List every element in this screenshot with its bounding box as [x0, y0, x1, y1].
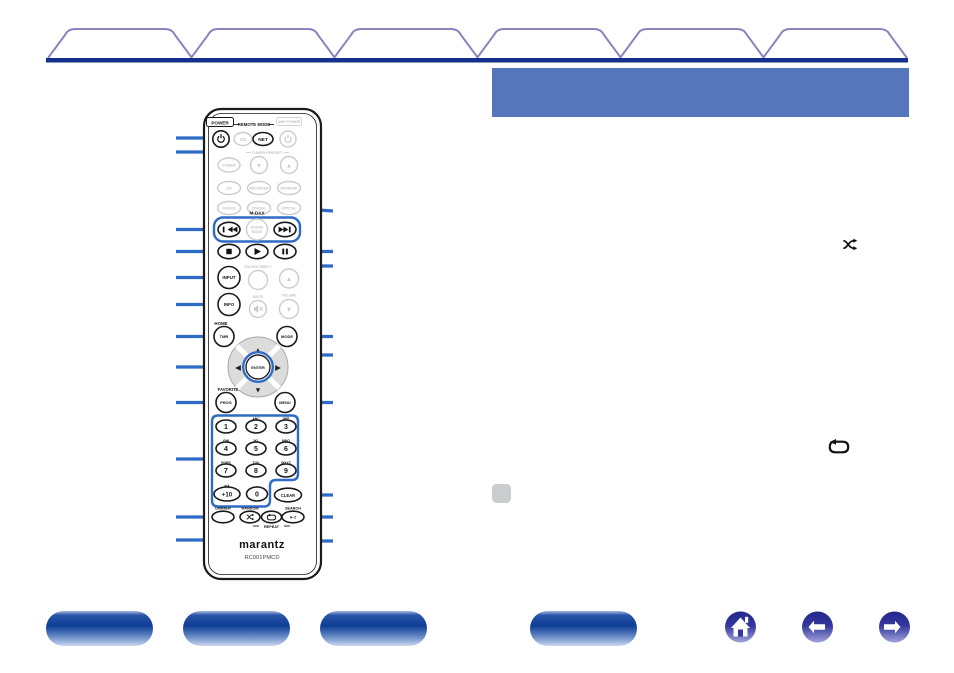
dpad-right-icon: ▶: [275, 363, 281, 372]
brand-logo: marantz: [239, 539, 285, 551]
input-label: INPUT: [222, 275, 235, 280]
net-mode-label: NET: [258, 137, 268, 143]
repeat-button: [262, 511, 282, 523]
preset-down-icon: ▼: [256, 164, 262, 170]
dimmer-button: [212, 511, 234, 523]
home-label: HOME: [214, 321, 227, 326]
volume-up-icon: ▲: [286, 276, 292, 283]
stop-icon: [226, 249, 231, 254]
footer-button-2[interactable]: [183, 611, 290, 646]
source-direct-button: [249, 271, 268, 290]
plus10-label: +10: [222, 492, 233, 498]
power-label: POWER: [211, 121, 229, 126]
zero-label: 0: [255, 492, 259, 499]
manual-page: POWER REMOTE MODE AMP POWER CD NET TUNER…: [0, 0, 954, 673]
key9-digit: 9: [284, 468, 288, 475]
volume-label: VOLUME: [281, 294, 297, 298]
mdax-label: M-DAX: [249, 211, 265, 216]
cd-mode-label: CD: [240, 137, 247, 142]
favorite-label: FAVORITE: [218, 387, 239, 392]
phono-label: PHONO: [223, 207, 236, 211]
key4-digit: 4: [224, 446, 228, 453]
remote-diagram: POWER REMOTE MODE AMP POWER CD NET TUNER…: [204, 109, 321, 579]
pause-button: [274, 244, 296, 258]
tab-6[interactable]: [763, 29, 907, 58]
clear-label: CLEAR: [281, 493, 295, 498]
footer-button-3[interactable]: [320, 611, 427, 646]
amp-power-button: [280, 131, 296, 147]
random-label: RANDOM: [241, 507, 258, 511]
home-button[interactable]: [725, 612, 756, 643]
tab-5[interactable]: [620, 29, 764, 58]
key7-digit: 7: [224, 468, 228, 475]
mute-label: MUTE: [253, 295, 264, 299]
preset-up-icon: ▲: [286, 164, 292, 170]
dpad-down-icon: ▼: [254, 386, 261, 395]
key3-digit: 3: [284, 424, 288, 431]
forward-button[interactable]: [879, 612, 910, 643]
volume-down-icon: ▼: [286, 307, 292, 314]
tuner-label: TUNER: [222, 164, 235, 168]
random-button: [240, 511, 260, 523]
tab-2[interactable]: [191, 29, 335, 58]
repeat-label: REPEAT: [264, 525, 280, 529]
amp-power-label: AMP POWER: [278, 120, 301, 124]
tab-underline: [46, 58, 908, 63]
dpad-left-icon: ◀: [235, 363, 241, 372]
back-button[interactable]: [802, 612, 833, 643]
tab-3[interactable]: [334, 29, 478, 58]
footer-button-1[interactable]: [46, 611, 153, 646]
remote-mode-label: REMOTE MODE: [238, 122, 271, 127]
network-label: NETWORK: [280, 187, 298, 191]
footer-button-4[interactable]: [530, 611, 637, 646]
recorder-label: RECORDER: [250, 187, 269, 191]
mode-label: MODE: [281, 334, 293, 339]
cd-input-label: CD: [226, 187, 232, 191]
model-number: RC001PMCD: [244, 555, 279, 561]
dimmer-label: DIMMER: [215, 507, 231, 511]
search-key-label: A–Z: [290, 516, 296, 520]
footer: [46, 611, 910, 646]
key2-digit: 2: [254, 424, 258, 431]
search-label: SEARCH: [285, 507, 301, 511]
repeat-icon: [830, 439, 848, 452]
optical-label: OPTICAL: [282, 207, 296, 211]
note-icon: [492, 484, 511, 503]
tab-bar: [46, 29, 908, 63]
shuffle-icon: [843, 239, 857, 251]
tab-1[interactable]: [48, 29, 192, 58]
key5-digit: 5: [254, 446, 258, 453]
key1-digit: 1: [224, 424, 228, 431]
menu-label: MENU: [279, 400, 291, 405]
timer-label: TMR: [220, 334, 229, 339]
info-label: INFO: [224, 302, 235, 307]
section-header-band: [492, 68, 909, 117]
prog-label: PROG: [220, 400, 231, 405]
sound-mode-label-2: MODE: [252, 230, 263, 234]
key6-digit: 6: [284, 446, 288, 453]
tab-4[interactable]: [477, 29, 621, 58]
tuner-preset-label: TUNER PRESET: [252, 150, 283, 155]
source-direct-label: SOURCE DIRECT: [244, 265, 271, 269]
power-button: [213, 131, 229, 147]
key8-digit: 8: [254, 468, 258, 475]
enter-label: ENTER: [251, 365, 265, 370]
